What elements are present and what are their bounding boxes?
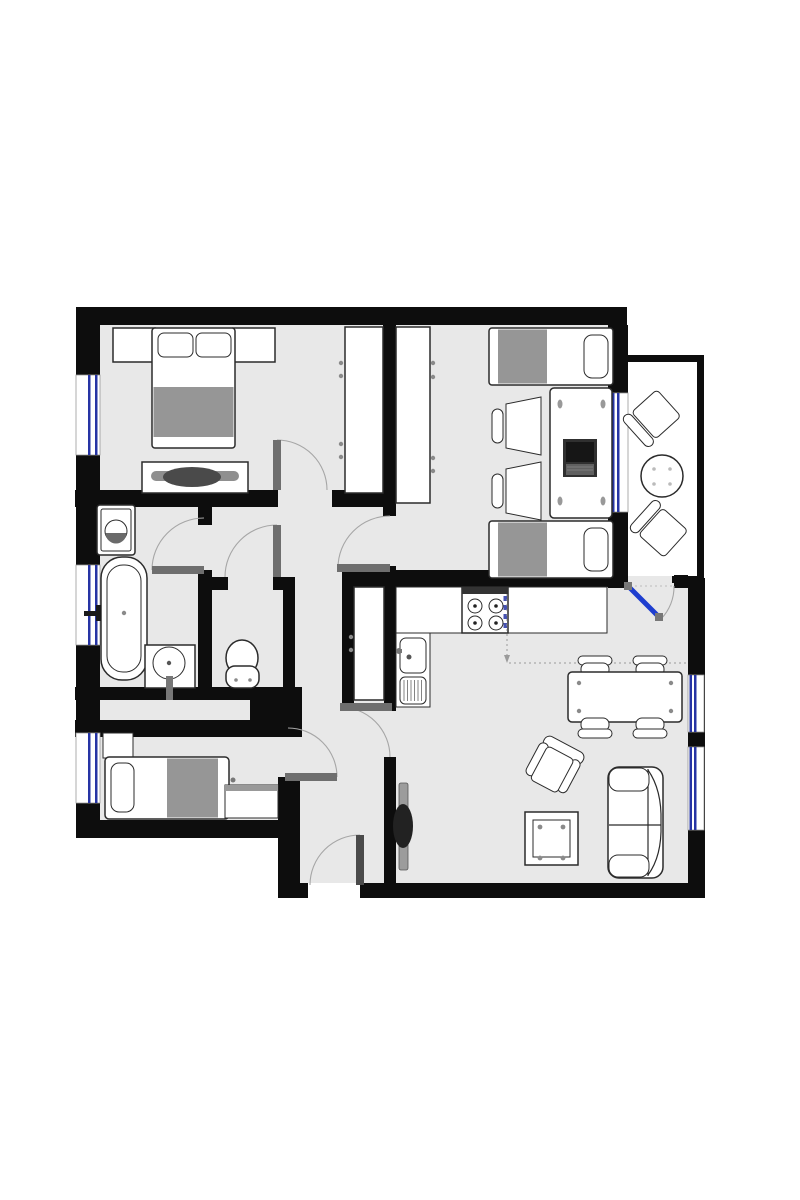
wall-entrance-left <box>278 777 300 898</box>
wall-right-living <box>688 578 705 898</box>
coffee-table <box>525 812 578 865</box>
wall-bottom-seg2 <box>360 883 384 898</box>
wall-wc-top-left <box>198 577 228 590</box>
window-bedroom-main <box>76 375 100 455</box>
floor-plan-drawing <box>0 0 800 1200</box>
sofa <box>608 767 663 878</box>
pillow <box>158 333 193 357</box>
side-table <box>103 733 133 758</box>
wall-bottom-living <box>384 883 705 898</box>
wall-bottom-seg1 <box>295 883 308 898</box>
double-bed <box>152 328 235 448</box>
wall-balcony-top <box>627 355 704 362</box>
single-bed-small <box>105 757 229 819</box>
wall-closet-divider <box>383 325 396 516</box>
dining-chair-bottom-right <box>633 718 667 738</box>
window-living-1 <box>688 675 704 732</box>
laptop <box>563 439 597 477</box>
pillow <box>196 333 231 357</box>
wardrobe-bedroom-main <box>339 327 383 493</box>
pillow <box>111 763 134 812</box>
wall-cabinet-left <box>342 587 354 705</box>
pillow <box>584 335 608 378</box>
wall-left-1 <box>76 307 100 375</box>
wardrobe-bedroom-twin <box>396 327 435 503</box>
wall-bath-right-upper <box>198 490 212 525</box>
window-bedroom-small <box>76 733 100 803</box>
wall-wc-right <box>283 577 295 700</box>
toilet <box>226 640 259 688</box>
nightstand-left <box>113 328 155 362</box>
desk <box>550 388 612 518</box>
washing-machine <box>97 505 135 555</box>
dining-chair-bottom-left <box>578 718 612 738</box>
wall-top <box>76 307 627 325</box>
tall-cabinet-hall <box>349 587 384 700</box>
dresser <box>142 462 248 493</box>
wall-balcony-bottom <box>672 576 704 583</box>
basin-tap <box>166 676 173 700</box>
sofa-armrest-top <box>609 768 649 791</box>
stove <box>462 587 508 633</box>
kitchen-sink <box>396 633 430 707</box>
nightstand-right <box>233 328 275 362</box>
round-table <box>641 455 683 497</box>
wall-balcony-right <box>697 355 704 583</box>
floor-plan-page <box>0 0 800 1200</box>
single-bed-top <box>489 328 613 385</box>
wc-furniture <box>226 640 259 688</box>
wall-smallroom-bottom <box>76 820 300 838</box>
wall-kitchen-upper <box>384 587 396 711</box>
dining-table <box>568 672 682 722</box>
single-bed-bottom <box>489 521 613 578</box>
window-living-2 <box>688 747 704 830</box>
sofa-armrest-bottom <box>609 855 649 877</box>
pillow <box>584 528 608 571</box>
